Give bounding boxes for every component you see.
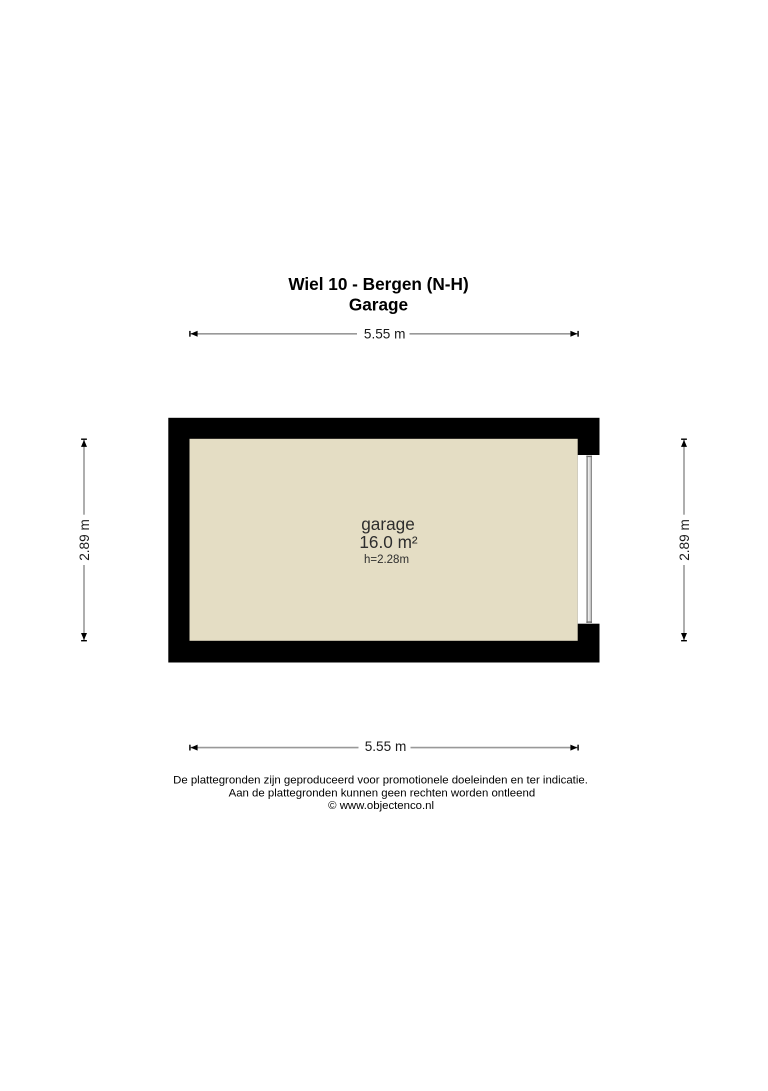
svg-text:5.55 m: 5.55 m — [365, 739, 407, 754]
svg-text:Aan de plattegronden kunnen ge: Aan de plattegronden kunnen geen rechten… — [229, 787, 536, 799]
svg-text:16.0 m²: 16.0 m² — [359, 532, 418, 552]
svg-text:garage: garage — [361, 514, 415, 534]
svg-text:De plattegronden zijn geproduc: De plattegronden zijn geproduceerd voor … — [173, 775, 588, 787]
svg-text:Garage: Garage — [349, 295, 408, 315]
svg-text:5.55 m: 5.55 m — [364, 327, 406, 342]
svg-text:Wiel 10 - Bergen (N-H): Wiel 10 - Bergen (N-H) — [288, 274, 468, 294]
svg-text:© www.objectenco.nl: © www.objectenco.nl — [328, 800, 434, 812]
svg-text:2.89 m: 2.89 m — [677, 519, 692, 561]
svg-text:2.89 m: 2.89 m — [77, 519, 92, 561]
svg-text:h=2.28m: h=2.28m — [364, 554, 409, 566]
